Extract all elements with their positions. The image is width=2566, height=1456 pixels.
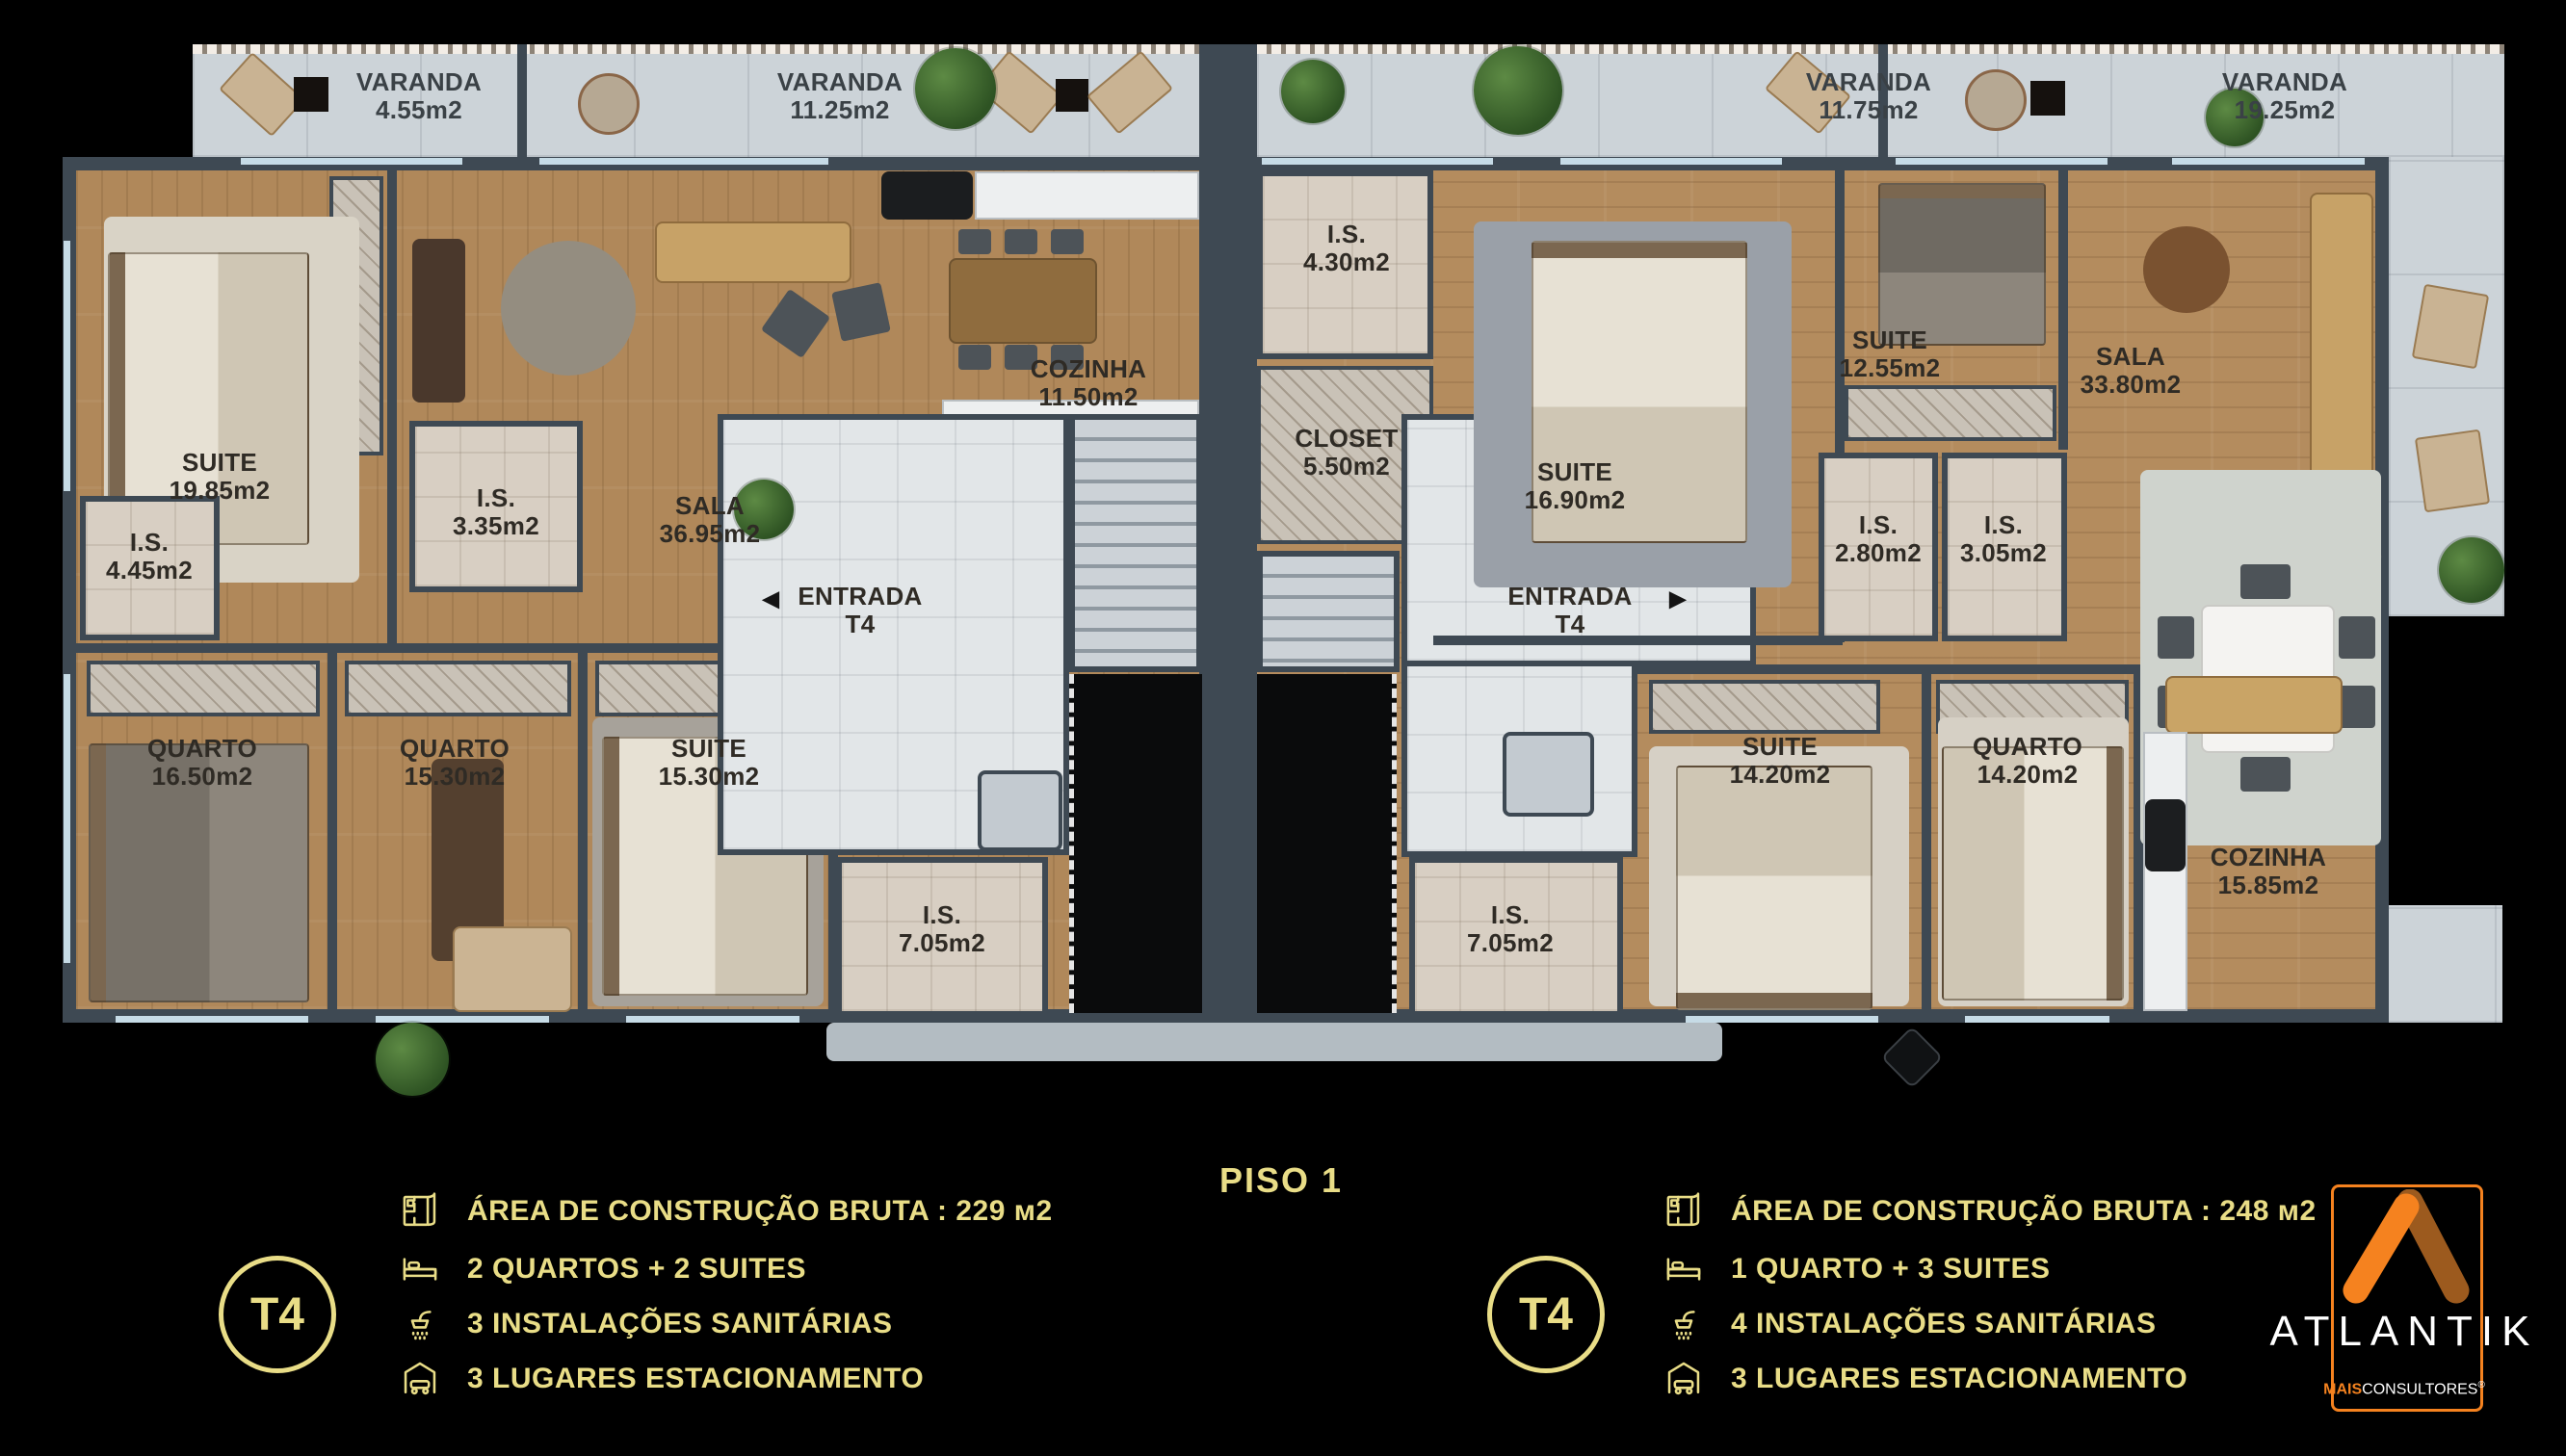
label-suite-1690: SUITE16.90m2 <box>1525 458 1626 514</box>
label-quarto-1420: QUARTO14.20m2 <box>1973 733 2082 789</box>
label-suite-1255: SUITE12.55m2 <box>1840 326 1941 382</box>
legend-row: 3 INSTALAÇÕES SANITÁRIAS <box>398 1301 892 1347</box>
window <box>64 674 70 963</box>
stove <box>881 171 973 220</box>
wall <box>1922 674 1931 1017</box>
patio-bottom-right <box>2381 905 2502 1023</box>
shower-icon <box>1662 1302 1706 1346</box>
typology-badge-left: T4 <box>219 1256 336 1373</box>
entry-arrow-left-icon: ◀ <box>762 585 779 613</box>
plant <box>1474 46 1562 135</box>
wall <box>327 653 337 1019</box>
elevator <box>1503 732 1594 817</box>
brand-logo: ATLANTIK MAISCONSULTORES® <box>2264 1151 2566 1449</box>
floorplan-poster: VARANDA4.55m2 VARANDA11.25m2 VARANDA11.7… <box>0 0 2566 1456</box>
elevator <box>978 770 1062 851</box>
sofa <box>655 221 851 283</box>
window <box>539 158 828 165</box>
plant <box>915 48 996 129</box>
bed-icon <box>398 1247 442 1291</box>
label-entrada-left: ENTRADAT4 <box>798 583 922 638</box>
legend-text: ÁREA DE CONSTRUÇÃO BRUTA : 229 м2 <box>467 1195 1053 1228</box>
legend-text: 1 QUARTO + 3 SUITES <box>1731 1253 2051 1286</box>
lounger <box>2412 284 2490 370</box>
legend-row: 2 QUARTOS + 2 SUITES <box>398 1246 806 1292</box>
label-varanda-3: VARANDA11.75m2 <box>1806 68 1931 124</box>
kitchen-counter <box>2143 732 2187 1011</box>
window <box>1965 1016 2109 1023</box>
label-varanda-1: VARANDA4.55m2 <box>356 68 482 124</box>
label-suite-1985: SUITE19.85m2 <box>170 449 271 505</box>
wardrobe <box>1649 680 1880 734</box>
egg-chair <box>578 73 640 135</box>
balcony-divider <box>517 44 527 157</box>
label-is-705-left: I.S.7.05m2 <box>899 901 985 957</box>
label-is-305: I.S.3.05m2 <box>1960 511 2047 567</box>
armchair <box>831 282 891 342</box>
staircase-right <box>1257 551 1400 672</box>
stair-void-right <box>1257 674 1397 1013</box>
balcony-railing <box>520 44 1199 54</box>
round-rug <box>501 241 636 376</box>
floorplan-icon <box>1662 1189 1706 1234</box>
brand-chevron-icon <box>2321 1189 2495 1324</box>
label-entrada-right: ENTRADAT4 <box>1507 583 1632 638</box>
window <box>1686 1016 1878 1023</box>
entry-arrow-right-icon: ▶ <box>1669 585 1687 613</box>
floorplan-icon <box>398 1189 442 1234</box>
egg-chair <box>1965 69 2027 131</box>
window <box>241 158 462 165</box>
coffee-table <box>2143 226 2230 313</box>
label-is-335: I.S.3.35m2 <box>453 484 539 540</box>
label-is-705-right: I.S.7.05m2 <box>1467 901 1554 957</box>
wardrobe <box>1845 385 2056 441</box>
side-table <box>294 77 328 112</box>
wardrobe <box>87 661 320 716</box>
garage-icon <box>1662 1357 1706 1401</box>
label-sala-right: SALA33.80m2 <box>2081 343 2182 399</box>
label-is-430: I.S.4.30m2 <box>1303 221 1390 276</box>
label-varanda-4: VARANDA19.25m2 <box>2222 68 2347 124</box>
wall <box>578 653 588 1019</box>
wall <box>2058 170 2068 450</box>
staircase-left <box>1069 414 1202 672</box>
wall <box>76 643 721 653</box>
label-cozinha-left: COZINHA11.50m2 <box>1031 355 1147 411</box>
label-is-445: I.S.4.45m2 <box>106 529 193 585</box>
legend-row: ÁREA DE CONSTRUÇÃO BRUTA : 248 м2 <box>1662 1188 2317 1235</box>
legend-text: 4 INSTALAÇÕES SANITÁRIAS <box>1731 1308 2156 1340</box>
bench <box>453 926 572 1012</box>
legend-text: 2 QUARTOS + 2 SUITES <box>467 1253 806 1286</box>
window <box>1560 158 1782 165</box>
legend-text: 3 LUGARES ESTACIONAMENTO <box>467 1363 924 1395</box>
wardrobe <box>345 661 571 716</box>
window <box>626 1016 799 1023</box>
plant <box>1281 60 1345 123</box>
window <box>376 1016 549 1023</box>
label-varanda-2: VARANDA11.25m2 <box>777 68 903 124</box>
chair <box>2240 564 2291 599</box>
stair-void-left <box>1069 674 1202 1013</box>
balcony-railing <box>193 44 520 54</box>
bed-icon <box>1662 1247 1706 1291</box>
label-quarto-1650: QUARTO16.50m2 <box>147 735 257 791</box>
plant <box>2439 537 2504 603</box>
chair <box>2240 757 2291 792</box>
window <box>2172 158 2365 165</box>
chair <box>1051 229 1084 254</box>
brand-name: ATLANTIK <box>2269 1308 2538 1356</box>
chair <box>2339 686 2375 728</box>
balcony-railing <box>1883 44 2504 54</box>
side-table <box>1056 79 1088 112</box>
side-table <box>2030 81 2065 116</box>
label-suite-1530: SUITE15.30m2 <box>659 735 760 791</box>
label-is-280: I.S.2.80m2 <box>1835 511 1922 567</box>
chair <box>2339 616 2375 659</box>
compass-marker <box>1880 1026 1943 1088</box>
legend-text: 3 INSTALAÇÕES SANITÁRIAS <box>467 1308 892 1340</box>
label-suite-1420: SUITE14.20m2 <box>1730 733 1831 789</box>
label-quarto-1530: QUARTO15.30m2 <box>400 735 510 791</box>
dining-table <box>949 258 1097 344</box>
bed <box>1676 766 1872 1010</box>
brand-subtitle: MAISCONSULTORES® <box>2323 1380 2485 1398</box>
chair <box>2158 616 2194 659</box>
sofa <box>2310 193 2373 514</box>
kitchen-counter <box>975 171 1199 220</box>
label-sala-left: SALA36.95m2 <box>660 492 761 548</box>
legend-row: 1 QUARTO + 3 SUITES <box>1662 1246 2051 1292</box>
label-closet: CLOSET5.50m2 <box>1295 425 1398 481</box>
wall <box>387 170 397 645</box>
label-cozinha-right: COZINHA15.85m2 <box>2211 844 2327 899</box>
legend-row: 4 INSTALAÇÕES SANITÁRIAS <box>1662 1301 2156 1347</box>
core-top-wall <box>1199 44 1257 157</box>
chair <box>958 229 991 254</box>
window <box>1896 158 2108 165</box>
window <box>1262 158 1493 165</box>
wall <box>1433 636 1843 645</box>
lounger <box>2415 429 2490 513</box>
legend-row: 3 LUGARES ESTACIONAMENTO <box>398 1356 924 1402</box>
tv-cabinet <box>412 239 465 403</box>
legend-text: ÁREA DE CONSTRUÇÃO BRUTA : 248 м2 <box>1731 1195 2317 1228</box>
kitchen-island <box>2165 676 2343 734</box>
chair <box>958 345 991 370</box>
balcony-railing <box>1257 44 1883 54</box>
plant <box>376 1023 449 1096</box>
window <box>64 241 70 491</box>
typology-badge-right: T4 <box>1487 1256 1605 1373</box>
page-title: PISO 1 <box>1219 1160 1343 1201</box>
chair <box>1005 229 1037 254</box>
legend-text: 3 LUGARES ESTACIONAMENTO <box>1731 1363 2187 1395</box>
window <box>116 1016 308 1023</box>
legend-row: ÁREA DE CONSTRUÇÃO BRUTA : 229 м2 <box>398 1188 1053 1235</box>
sidewalk <box>826 1023 1722 1061</box>
garage-icon <box>398 1357 442 1401</box>
legend-row: 3 LUGARES ESTACIONAMENTO <box>1662 1356 2187 1402</box>
shower-icon <box>398 1302 442 1346</box>
bed <box>1878 183 2046 346</box>
stove <box>2145 799 2186 871</box>
